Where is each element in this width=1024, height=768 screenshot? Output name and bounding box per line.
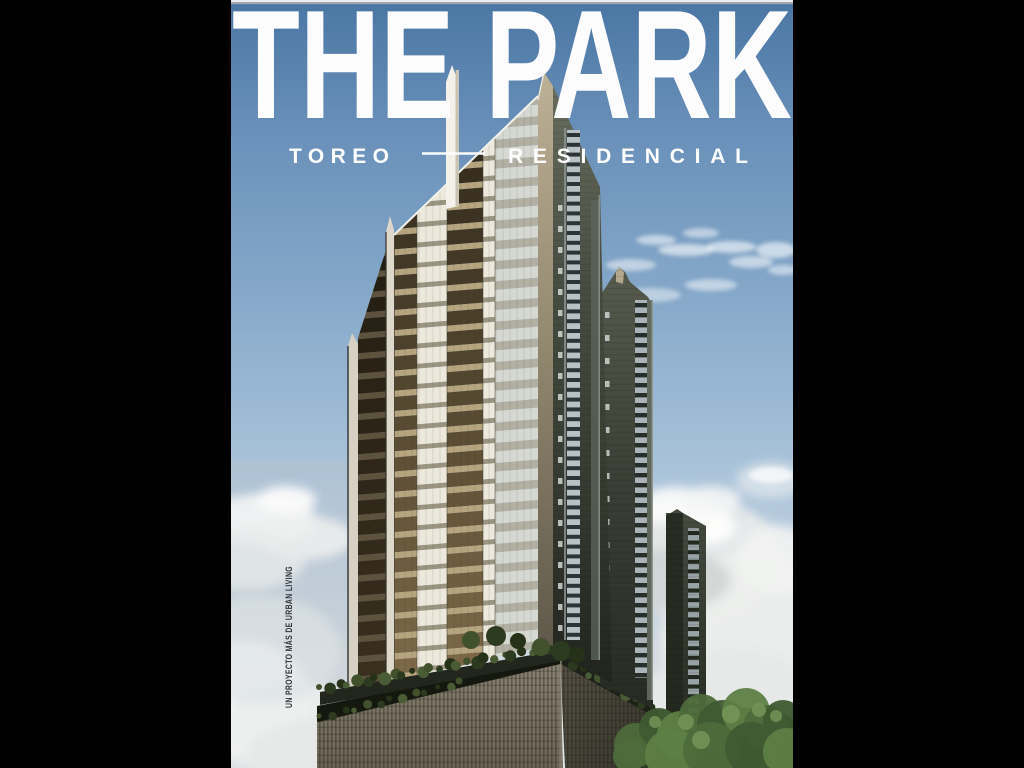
poster-title: THE PARK <box>232 0 792 151</box>
real-estate-poster: THE PARK TOREO RESIDENCIAL UN PROYECTO M… <box>231 0 793 768</box>
letterbox-left <box>0 0 231 768</box>
vertical-credit: UN PROYECTO MÁS DE URBAN LIVING <box>284 566 295 708</box>
subtitle-residencial: RESIDENCIAL <box>508 145 748 168</box>
letterboxed-photo-view: THE PARK TOREO RESIDENCIAL UN PROYECTO M… <box>0 0 1024 768</box>
letterbox-right <box>793 0 1024 768</box>
poster-artwork: THE PARK TOREO RESIDENCIAL UN PROYECTO M… <box>231 0 793 768</box>
